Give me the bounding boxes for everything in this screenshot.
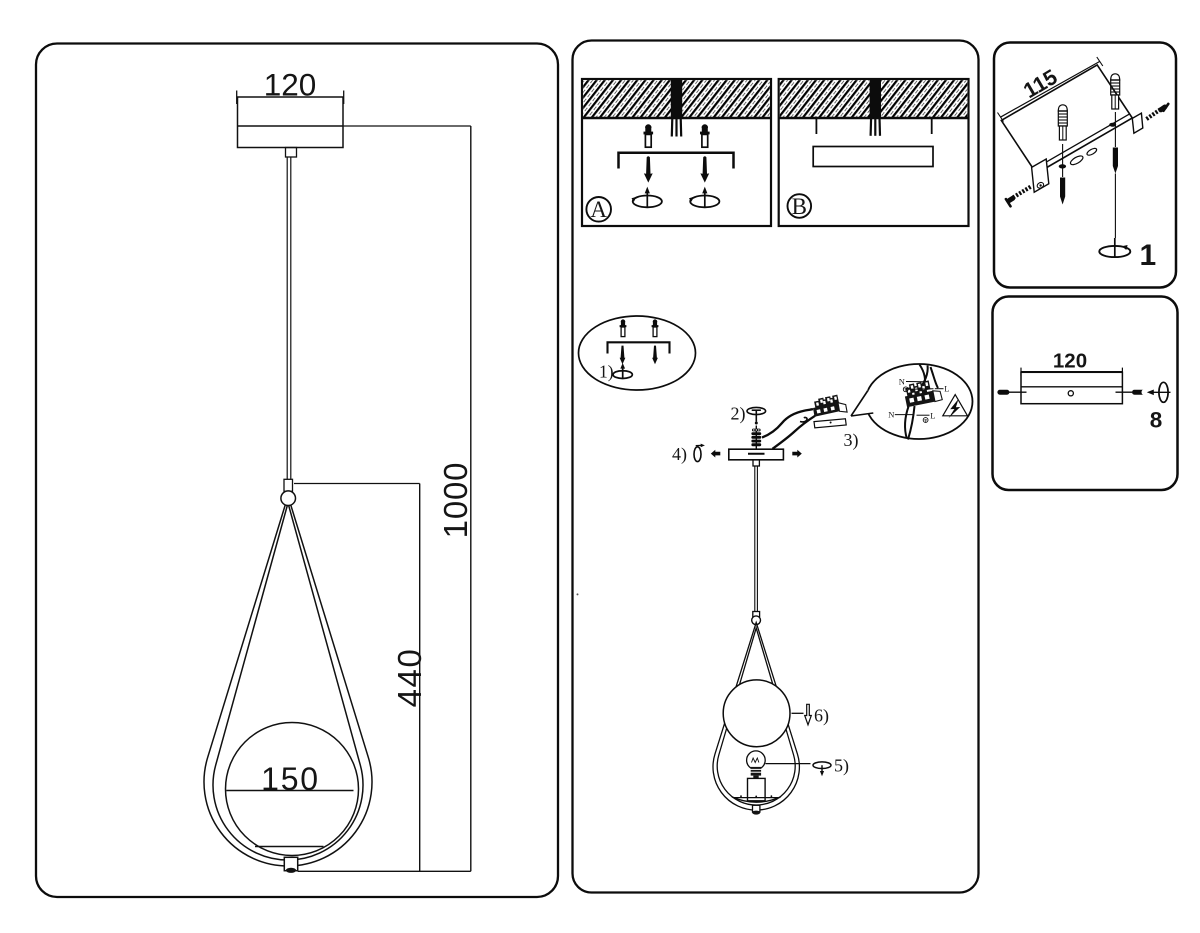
svg-text:1000: 1000 (437, 462, 474, 539)
svg-text:150: 150 (261, 761, 320, 797)
svg-text:1: 1 (1140, 239, 1157, 272)
svg-text:L: L (944, 384, 949, 394)
svg-text:5): 5) (834, 755, 849, 776)
svg-text:120: 120 (264, 67, 317, 103)
svg-text:8: 8 (1150, 408, 1163, 433)
svg-text:120: 120 (1053, 350, 1087, 373)
svg-text:6): 6) (814, 706, 829, 727)
svg-text:2): 2) (731, 404, 746, 425)
svg-text:N: N (899, 377, 905, 387)
svg-text:L: L (930, 410, 935, 420)
svg-text:N: N (888, 409, 894, 419)
svg-text:B: B (792, 194, 807, 219)
svg-text:A: A (590, 197, 607, 222)
svg-text:1): 1) (599, 362, 614, 382)
svg-text:4): 4) (672, 444, 687, 465)
svg-text:440: 440 (391, 648, 428, 708)
svg-text:3): 3) (844, 430, 859, 451)
